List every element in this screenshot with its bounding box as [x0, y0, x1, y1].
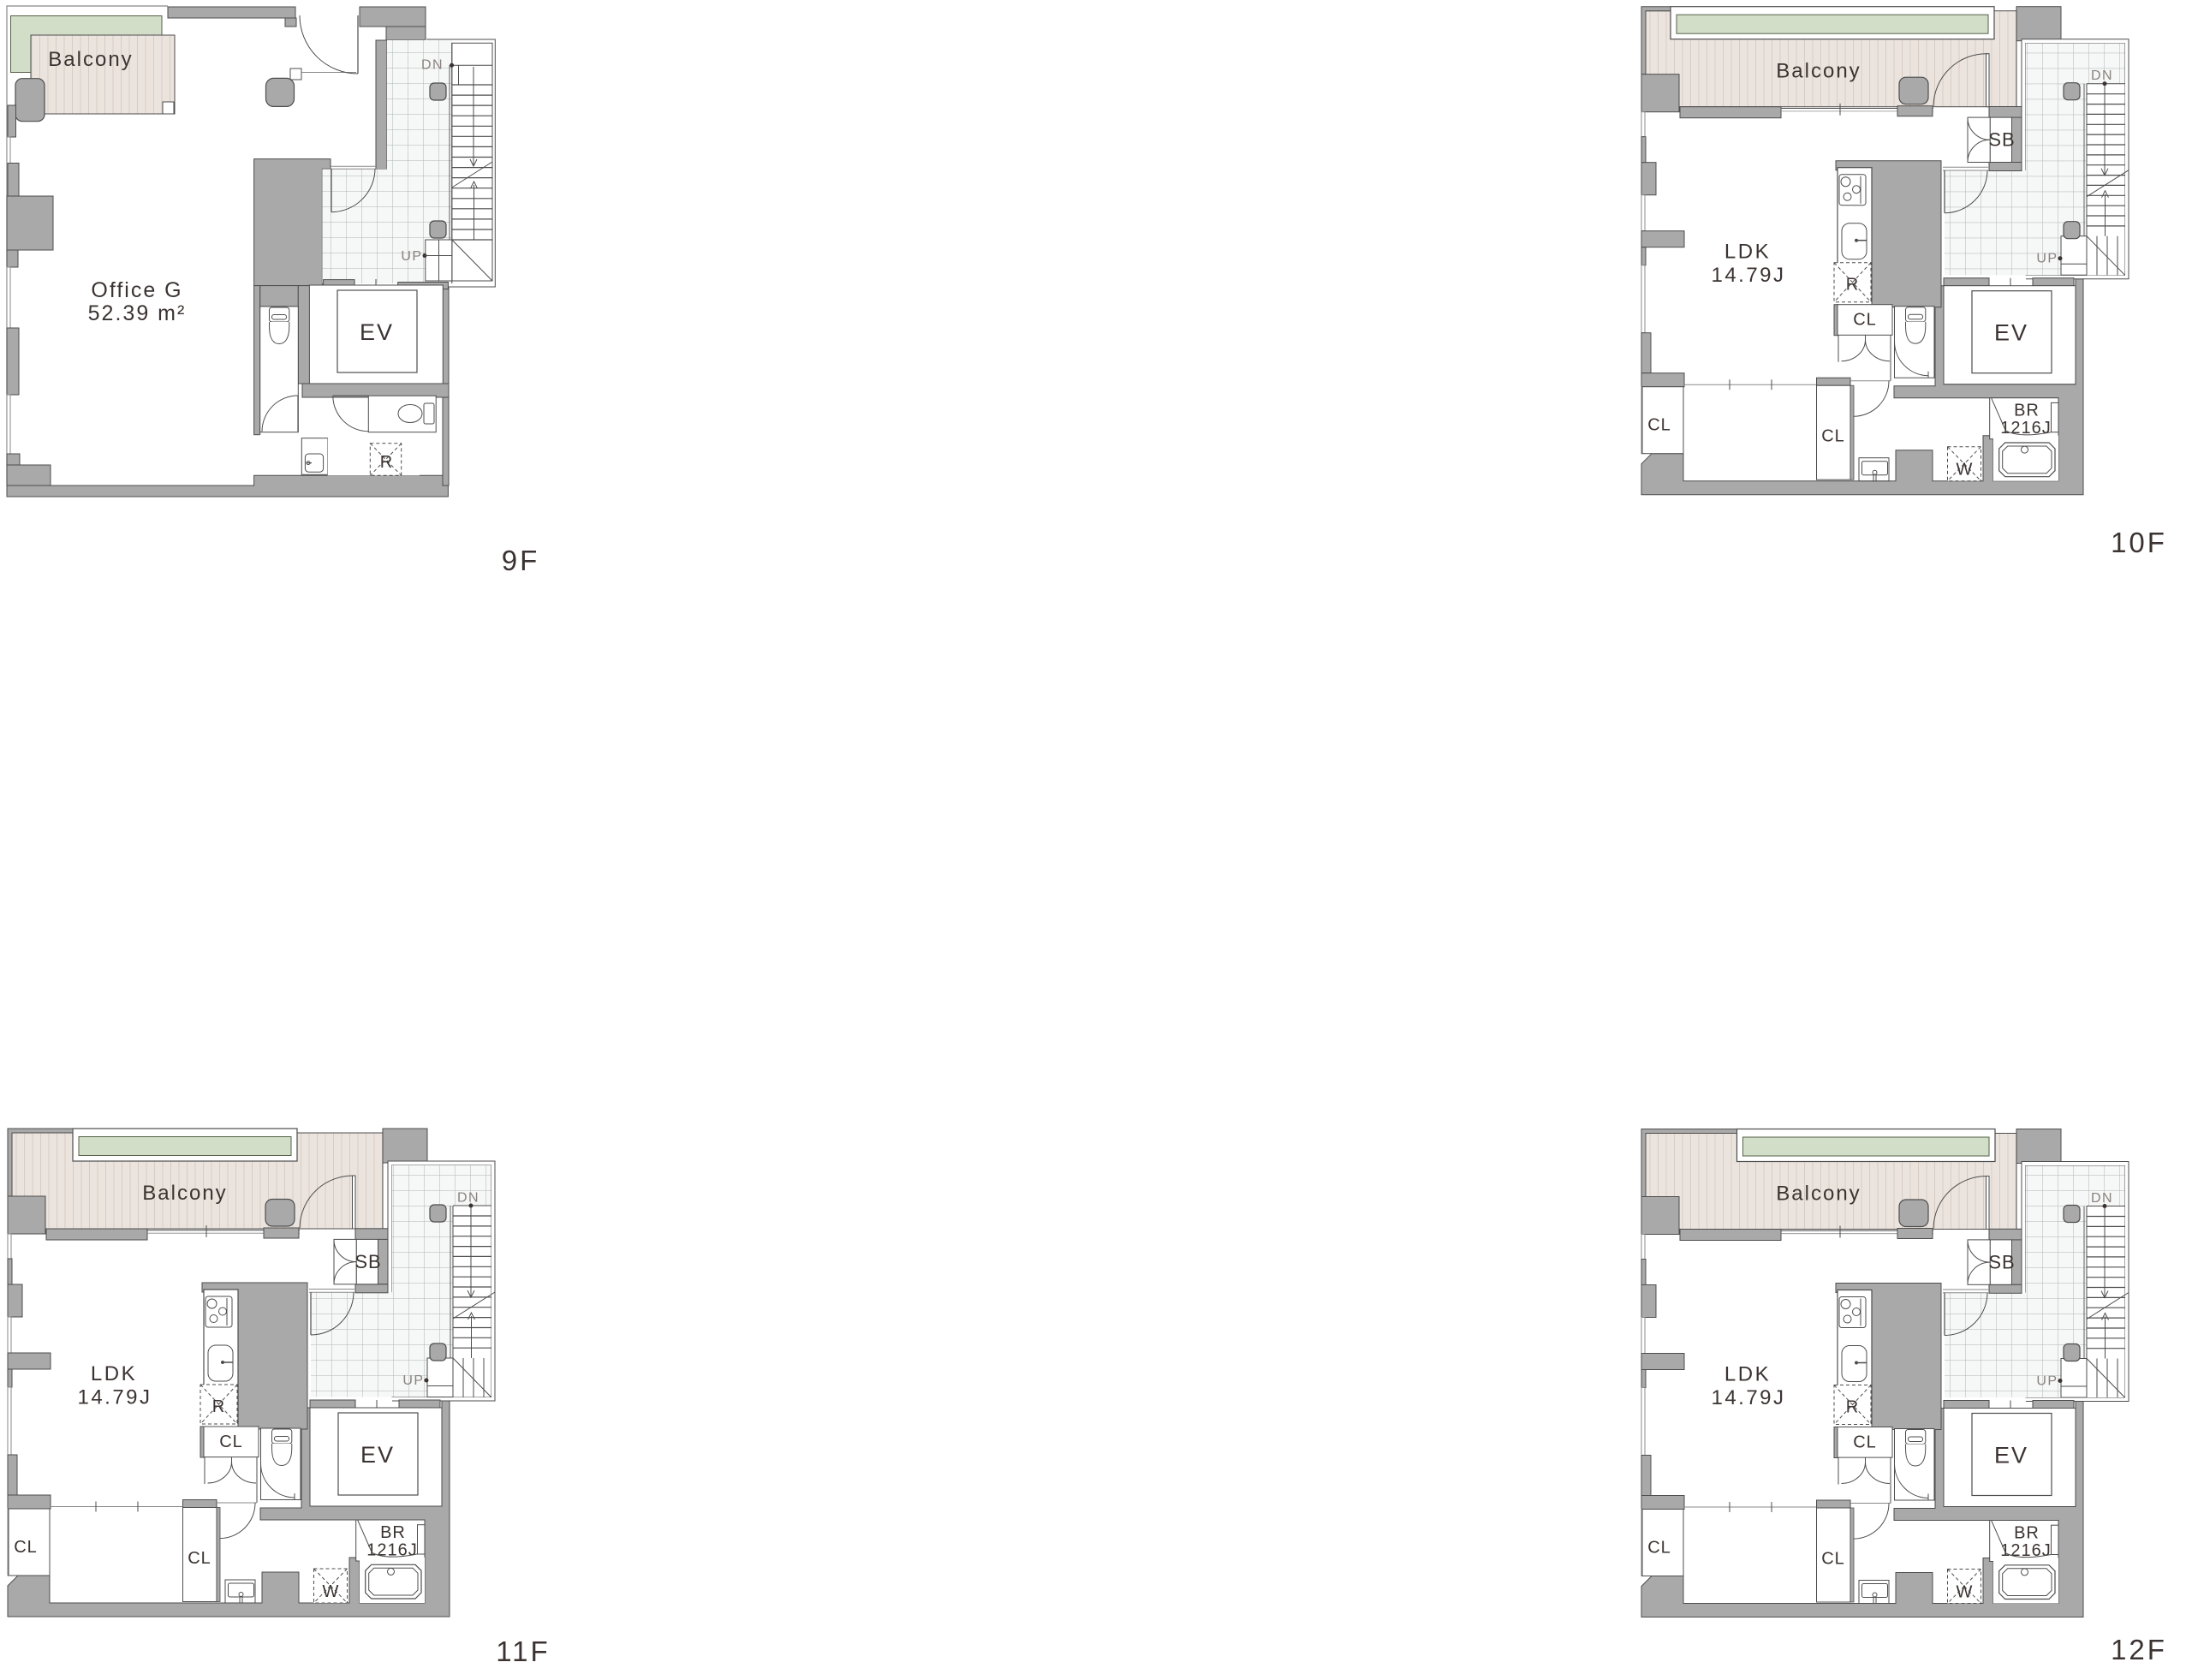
svg-text:SB: SB [1988, 1252, 2015, 1273]
svg-text:9F: 9F [502, 545, 540, 576]
svg-text:DN: DN [457, 1191, 479, 1206]
svg-text:CL: CL [1647, 416, 1671, 435]
svg-text:CL: CL [1853, 1433, 1877, 1452]
svg-text:DN: DN [2091, 1191, 2113, 1206]
svg-text:14.79J: 14.79J [77, 1386, 152, 1409]
svg-text:UP: UP [402, 1373, 424, 1388]
svg-text:BR: BR [2014, 402, 2040, 420]
svg-text:10F: 10F [2111, 527, 2167, 558]
svg-text:Balcony: Balcony [48, 48, 133, 71]
svg-text:R: R [212, 1397, 224, 1416]
svg-text:EV: EV [360, 1442, 395, 1468]
svg-text:LDK: LDK [91, 1362, 137, 1385]
svg-text:14.79J: 14.79J [1711, 264, 1785, 287]
svg-text:EV: EV [1994, 320, 2028, 346]
svg-text:CL: CL [219, 1433, 243, 1451]
svg-text:Balcony: Balcony [1776, 60, 1861, 83]
svg-text:W: W [1957, 461, 1973, 480]
svg-text:12F: 12F [2111, 1634, 2167, 1665]
svg-text:CL: CL [1853, 311, 1877, 330]
svg-text:52.39 m²: 52.39 m² [88, 301, 187, 325]
svg-text:BR: BR [2014, 1524, 2040, 1543]
svg-text:LDK: LDK [1724, 241, 1771, 264]
svg-text:11F: 11F [496, 1635, 550, 1667]
svg-text:W: W [323, 1582, 339, 1601]
svg-text:SB: SB [354, 1251, 381, 1272]
svg-text:EV: EV [360, 319, 394, 345]
svg-text:Balcony: Balcony [1776, 1183, 1861, 1206]
svg-text:CL: CL [14, 1538, 38, 1557]
svg-text:CL: CL [1647, 1539, 1671, 1558]
svg-text:CL: CL [1821, 427, 1845, 446]
svg-text:DN: DN [421, 58, 444, 73]
svg-text:UP: UP [2036, 1374, 2058, 1389]
svg-text:CL: CL [1821, 1550, 1845, 1569]
svg-text:UP: UP [2036, 252, 2058, 266]
svg-text:Office G: Office G [91, 278, 182, 302]
svg-text:CL: CL [188, 1549, 211, 1568]
svg-text:LDK: LDK [1724, 1363, 1771, 1386]
svg-text:R: R [1846, 276, 1858, 295]
svg-text:Balcony: Balcony [142, 1182, 227, 1205]
svg-text:DN: DN [2091, 69, 2113, 83]
svg-text:W: W [1957, 1583, 1973, 1602]
svg-text:R: R [1846, 1398, 1858, 1417]
svg-text:14.79J: 14.79J [1711, 1386, 1785, 1409]
svg-text:BR: BR [380, 1523, 406, 1542]
svg-text:SB: SB [1988, 129, 2015, 151]
svg-text:R: R [380, 453, 392, 472]
svg-text:EV: EV [1994, 1443, 2028, 1469]
svg-text:UP: UP [401, 249, 422, 264]
